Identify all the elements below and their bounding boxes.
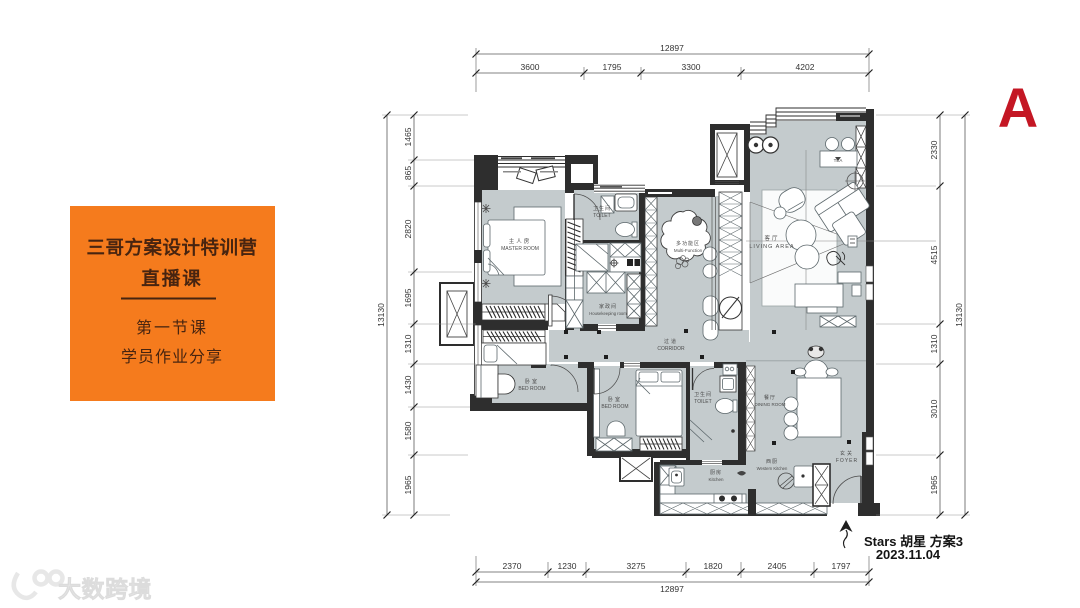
- svg-text:厨房: 厨房: [710, 469, 722, 476]
- svg-text:1230: 1230: [558, 561, 577, 571]
- svg-text:1580: 1580: [403, 421, 413, 440]
- svg-text:1695: 1695: [403, 288, 413, 307]
- svg-text:2330: 2330: [929, 140, 939, 159]
- svg-text:1965: 1965: [929, 475, 939, 494]
- svg-text:DINING ROOM: DINING ROOM: [755, 402, 786, 407]
- svg-text:多功能区: 多功能区: [676, 240, 700, 247]
- svg-text:TOILET: TOILET: [694, 399, 711, 405]
- svg-text:1965: 1965: [403, 475, 413, 494]
- svg-text:BED ROOM: BED ROOM: [518, 386, 545, 392]
- svg-text:13130: 13130: [376, 303, 386, 327]
- svg-text:学员作业分享: 学员作业分享: [121, 348, 223, 366]
- svg-text:865: 865: [403, 166, 413, 180]
- svg-text:Western Kitchen: Western Kitchen: [757, 466, 788, 471]
- svg-text:4202: 4202: [796, 62, 815, 72]
- svg-text:MASTER ROOM: MASTER ROOM: [501, 246, 539, 252]
- svg-text:过道: 过道: [664, 338, 678, 345]
- svg-text:1820: 1820: [704, 561, 723, 571]
- svg-text:1430: 1430: [403, 375, 413, 394]
- svg-text:2405: 2405: [768, 561, 787, 571]
- svg-text:第一节课: 第一节课: [136, 319, 208, 337]
- svg-text:2023.11.04: 2023.11.04: [876, 547, 941, 562]
- svg-text:餐厅: 餐厅: [764, 394, 776, 401]
- svg-text:直播课: 直播课: [141, 268, 203, 289]
- svg-text:玄关: 玄关: [840, 450, 854, 457]
- svg-text:3010: 3010: [929, 399, 939, 418]
- svg-text:A: A: [998, 76, 1038, 139]
- svg-text:1310: 1310: [929, 334, 939, 353]
- svg-text:客厅: 客厅: [764, 234, 779, 242]
- svg-text:Housekeeping room: Housekeeping room: [589, 311, 627, 316]
- svg-text:LIVING AREA: LIVING AREA: [749, 244, 794, 250]
- svg-text:13130: 13130: [954, 303, 964, 327]
- svg-text:CORRIDOR: CORRIDOR: [657, 346, 685, 352]
- svg-text:西厨: 西厨: [766, 459, 778, 465]
- svg-text:3300: 3300: [682, 62, 701, 72]
- svg-text:FOYER: FOYER: [836, 458, 858, 464]
- svg-text:主人房: 主人房: [509, 237, 532, 245]
- svg-text:12897: 12897: [660, 43, 684, 53]
- svg-text:Kitchen: Kitchen: [708, 477, 724, 482]
- svg-text:3600: 3600: [521, 62, 540, 72]
- svg-text:1797: 1797: [832, 561, 851, 571]
- svg-text:4515: 4515: [929, 245, 939, 264]
- svg-text:三哥方案设计特训营: 三哥方案设计特训营: [86, 237, 257, 258]
- svg-text:大数跨境: 大数跨境: [58, 576, 152, 602]
- svg-text:Multi-Function: Multi-Function: [674, 248, 703, 253]
- svg-text:1795: 1795: [603, 62, 622, 72]
- svg-text:2370: 2370: [503, 561, 522, 571]
- svg-text:卫生间: 卫生间: [593, 205, 611, 212]
- svg-text:卧室: 卧室: [608, 396, 622, 403]
- svg-text:卧室: 卧室: [525, 378, 539, 385]
- svg-text:1310: 1310: [403, 334, 413, 353]
- svg-text:卫生间: 卫生间: [694, 391, 712, 398]
- svg-text:2820: 2820: [403, 219, 413, 238]
- svg-text:TEA: TEA: [834, 158, 843, 163]
- svg-text:家政间: 家政间: [599, 303, 617, 310]
- svg-text:BED ROOM: BED ROOM: [601, 404, 628, 410]
- svg-text:1465: 1465: [403, 127, 413, 146]
- svg-text:TOILET: TOILET: [593, 213, 610, 219]
- svg-text:3275: 3275: [627, 561, 646, 571]
- svg-text:12897: 12897: [660, 584, 684, 594]
